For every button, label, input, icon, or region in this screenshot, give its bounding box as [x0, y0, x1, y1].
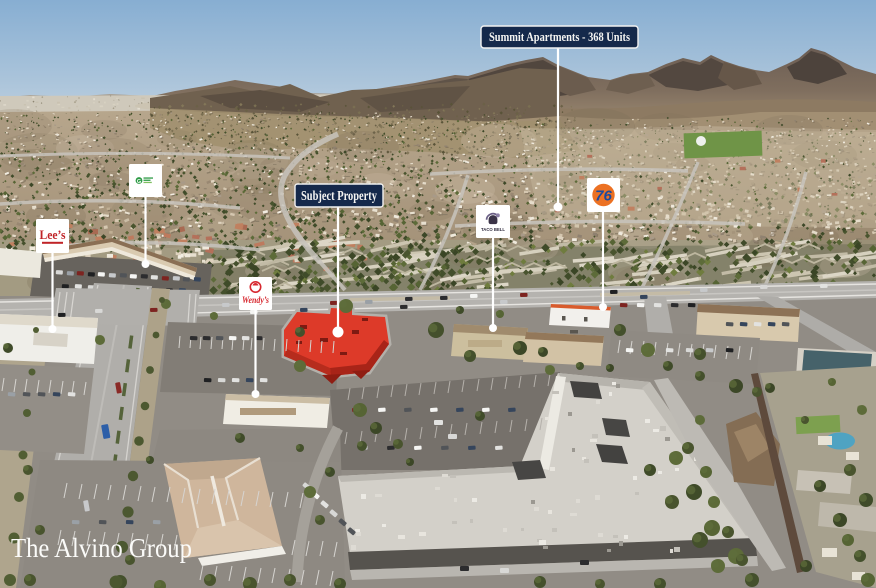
svg-text:Summit Apartments - 368 Units: Summit Apartments - 368 Units: [489, 29, 630, 44]
svg-text:TACO BELL: TACO BELL: [481, 227, 505, 233]
svg-text:The Alvino Group: The Alvino Group: [11, 533, 192, 563]
svg-text:76: 76: [595, 188, 612, 205]
svg-text:G: G: [137, 179, 141, 185]
svg-text:Subject Property: Subject Property: [301, 188, 377, 203]
svg-text:Wendy’s: Wendy’s: [242, 295, 269, 305]
svg-text:Lee’s: Lee’s: [40, 228, 66, 242]
